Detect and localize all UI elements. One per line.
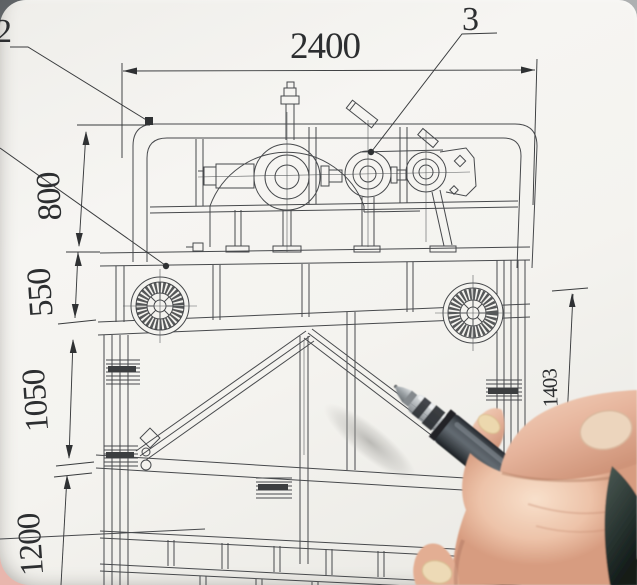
photo-of-technical-drawing: 2400 800 550 1050 1200 [0,0,637,585]
hand-and-pen-layer [0,0,637,585]
